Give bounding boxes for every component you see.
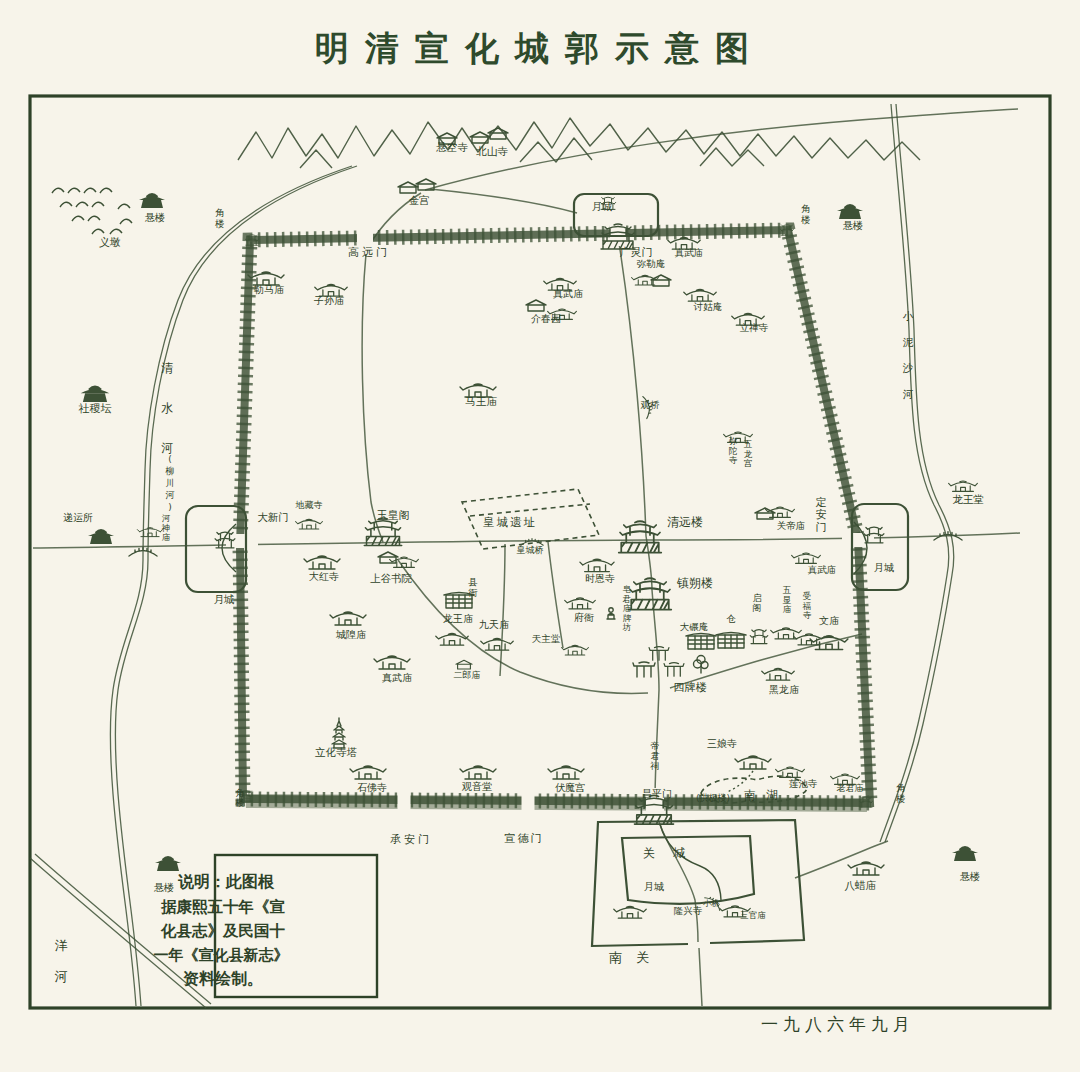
map-label: 真武庙 [553, 288, 583, 299]
map-label: 马王庙 [465, 395, 497, 407]
map-label: 悬楼 [842, 220, 863, 231]
map-label: 文庙 [819, 615, 839, 626]
map-label: 观音堂 [461, 781, 492, 792]
temple-icon [350, 766, 386, 779]
map-label: 小桥 [703, 899, 719, 908]
map-label: 城隍庙 [335, 629, 366, 640]
map-label: 角楼 [214, 207, 225, 229]
map-label: 月城 [214, 593, 235, 605]
map-label: 黑龙庙 [769, 684, 799, 695]
map-label: 五显庙 [783, 585, 792, 614]
map-label: 真武庙 [382, 672, 412, 683]
map-label: 悬空寺 [435, 141, 468, 153]
temple-icon [390, 557, 419, 567]
temple-icon [580, 559, 614, 571]
map-label: 玉皇阁 [377, 509, 410, 522]
map-label: 悬楼 [144, 212, 165, 223]
map-label: 真武庙 [808, 564, 837, 575]
dark-pavilion-icon [88, 529, 114, 544]
map-label: 子孙庙 [313, 295, 344, 306]
map-page: 明清宣化城郭示意图北山寺悬空寺金宫义墩悬楼角楼社稷坛清水河(柳川河)递运所河神庙… [0, 0, 1080, 1072]
map-label: 二郎庙 [454, 670, 481, 680]
temple-icon [548, 766, 584, 779]
note-line: 化县志》及民国十 [160, 922, 286, 940]
barbicans [186, 194, 908, 946]
map-label: 勒马庙 [254, 284, 284, 295]
temple-icon [374, 656, 410, 669]
tower-icon [750, 630, 768, 644]
xuanhua-city-map: 明清宣化城郭示意图北山寺悬空寺金宫义墩悬楼角楼社稷坛清水河(柳川河)递运所河神庙… [0, 0, 1080, 1072]
map-label: 社稷坛 [79, 402, 112, 415]
map-label: 镇朔楼 [676, 576, 713, 590]
temple-icon [460, 766, 496, 779]
map-label: 金宫 [409, 194, 430, 206]
map-label: 莲池寺 [789, 778, 818, 789]
note-line: 一年《宣化县新志》 [154, 946, 289, 964]
map-label: 南关 [609, 950, 663, 965]
walled-compound-icon [686, 634, 716, 650]
house-icon [488, 128, 508, 139]
temple-icon [137, 528, 162, 537]
statue-icon [607, 608, 615, 619]
map-label: 县衙 [467, 576, 478, 598]
map-label: (柳川河) [165, 454, 175, 512]
pailou-icon [664, 663, 684, 677]
map-label: 三官庙 [740, 910, 766, 920]
map-label: 大碾庵 [680, 621, 709, 632]
temple-icon [296, 519, 323, 529]
temple-icon [792, 553, 821, 563]
map-label: 三娘寺 [707, 738, 737, 749]
map-label: 八蜡庙 [844, 879, 876, 891]
gate-tower-icon [629, 578, 672, 609]
tree-icon [694, 656, 709, 674]
map-label: 皇城遗址 [483, 515, 537, 529]
map-label: 皂君庙牌坊 [622, 584, 632, 632]
map-label: 上谷书院 [370, 572, 413, 584]
map-label: 大红寺 [309, 571, 339, 582]
map-label: 角楼 [800, 203, 811, 225]
walled-compound-icon [716, 633, 746, 649]
temple-icon [304, 556, 340, 569]
dark-pavilion-icon [837, 204, 863, 219]
hills-yidun [52, 188, 132, 234]
map-label: 龙王庙 [443, 613, 473, 624]
map-label: 五龙宫 [744, 439, 753, 468]
map-title: 明清宣化城郭示意图 [315, 28, 765, 68]
temple-icon [949, 481, 978, 491]
map-label: 义墩 [99, 236, 121, 249]
map-label: 九天庙 [479, 619, 509, 630]
dark-pavilion-icon [81, 386, 110, 403]
map-label: 月城 [592, 201, 612, 212]
note-line: 资料绘制。 [183, 969, 263, 988]
map-label: 关帝庙 [777, 520, 806, 531]
map-label: 立禅寺 [740, 322, 769, 333]
house-icon [526, 300, 546, 311]
map-label: 帝君祠 [650, 741, 660, 771]
pailou-icon [633, 662, 655, 677]
pagoda-icon [332, 718, 346, 748]
map-label: 清远楼 [667, 515, 703, 529]
map-label: 地藏寺 [295, 500, 323, 510]
map-label: 角楼 [235, 788, 245, 808]
map-label: 讨姑庵 [693, 301, 723, 312]
map-label: 悬楼 [153, 882, 174, 893]
map-label: 天主堂 [532, 633, 561, 644]
house-icon [378, 552, 398, 563]
map-labels: 明清宣化城郭示意图北山寺悬空寺金宫义墩悬楼角楼社稷坛清水河(柳川河)递运所河神庙… [55, 28, 984, 1034]
map-label: 递运所 [63, 512, 93, 523]
map-label: 南湖 [744, 788, 788, 802]
map-label: 高远门 [348, 246, 390, 259]
note-line: 据康熙五十年《宣 [160, 898, 286, 916]
map-label: 月城 [874, 562, 894, 573]
map-label: 大新门 [257, 511, 289, 523]
map-label: 观桥 [641, 399, 661, 410]
map-label: 承安门 [390, 833, 432, 846]
map-label: 昌平门 [642, 788, 672, 799]
map-label: 宣德门 [505, 832, 544, 845]
map-label: 洋河 [55, 938, 68, 984]
map-label: 月城 [644, 881, 664, 892]
gate-tower-icon [619, 521, 662, 552]
map-label: 关城 [643, 846, 703, 860]
dark-pavilion-icon [952, 846, 978, 861]
temple-icon [771, 628, 802, 639]
map-label: 龙王堂 [952, 493, 984, 505]
map-label: 四牌楼 [674, 681, 707, 694]
map-label: (拱极楼) [696, 793, 730, 803]
map-label: 弥陀寺 [729, 436, 738, 465]
temple-icon [762, 669, 794, 681]
map-label: 立化寺塔 [315, 746, 358, 758]
map-label: 定安门 [816, 496, 827, 534]
house-icon [398, 182, 418, 193]
map-label: 受福寺 [802, 591, 812, 620]
map-label: 小泥沙河 [902, 310, 914, 400]
map-label: 弥勒庵 [637, 258, 666, 269]
map-label: 角楼 [895, 782, 906, 804]
temple-icon [565, 598, 596, 609]
temple-icon [614, 907, 646, 919]
pailou-icon [649, 647, 669, 661]
note-line: 说明：此图根 [177, 872, 275, 891]
dark-pavilion-icon [139, 193, 165, 208]
map-label: 隆兴寺 [674, 905, 703, 916]
map-label: 北山寺 [475, 145, 508, 157]
temple-icon [330, 612, 366, 625]
temple-icon [766, 507, 795, 517]
temple-icon [562, 645, 589, 655]
dark-pavilion-icon [155, 856, 181, 871]
map-label: 启阁 [753, 593, 762, 613]
temple-icon [848, 862, 884, 875]
map-label: 悬楼 [959, 871, 980, 882]
map-label: 府衙 [574, 612, 594, 623]
temple-icon [481, 639, 513, 651]
map-label: 介春园 [531, 313, 561, 324]
mountain-range [238, 118, 920, 168]
map-date: 一九八六年九月 [761, 1014, 915, 1034]
map-label: 皇城桥 [517, 545, 544, 555]
temple-icon [735, 756, 771, 769]
map-label: 仓 [726, 613, 736, 624]
house-icon [651, 275, 671, 286]
map-label: 伏魔宫 [555, 782, 585, 793]
temple-icon [684, 290, 716, 302]
map-label: 河神庙 [161, 513, 171, 542]
map-label: 真武庙 [675, 247, 704, 258]
map-label: 石佛寺 [357, 782, 387, 793]
map-label: 清水河 [161, 361, 173, 455]
house-icon [456, 660, 472, 669]
map-label: 老君庙 [837, 783, 864, 793]
map-label: 时恩寺 [585, 573, 615, 584]
